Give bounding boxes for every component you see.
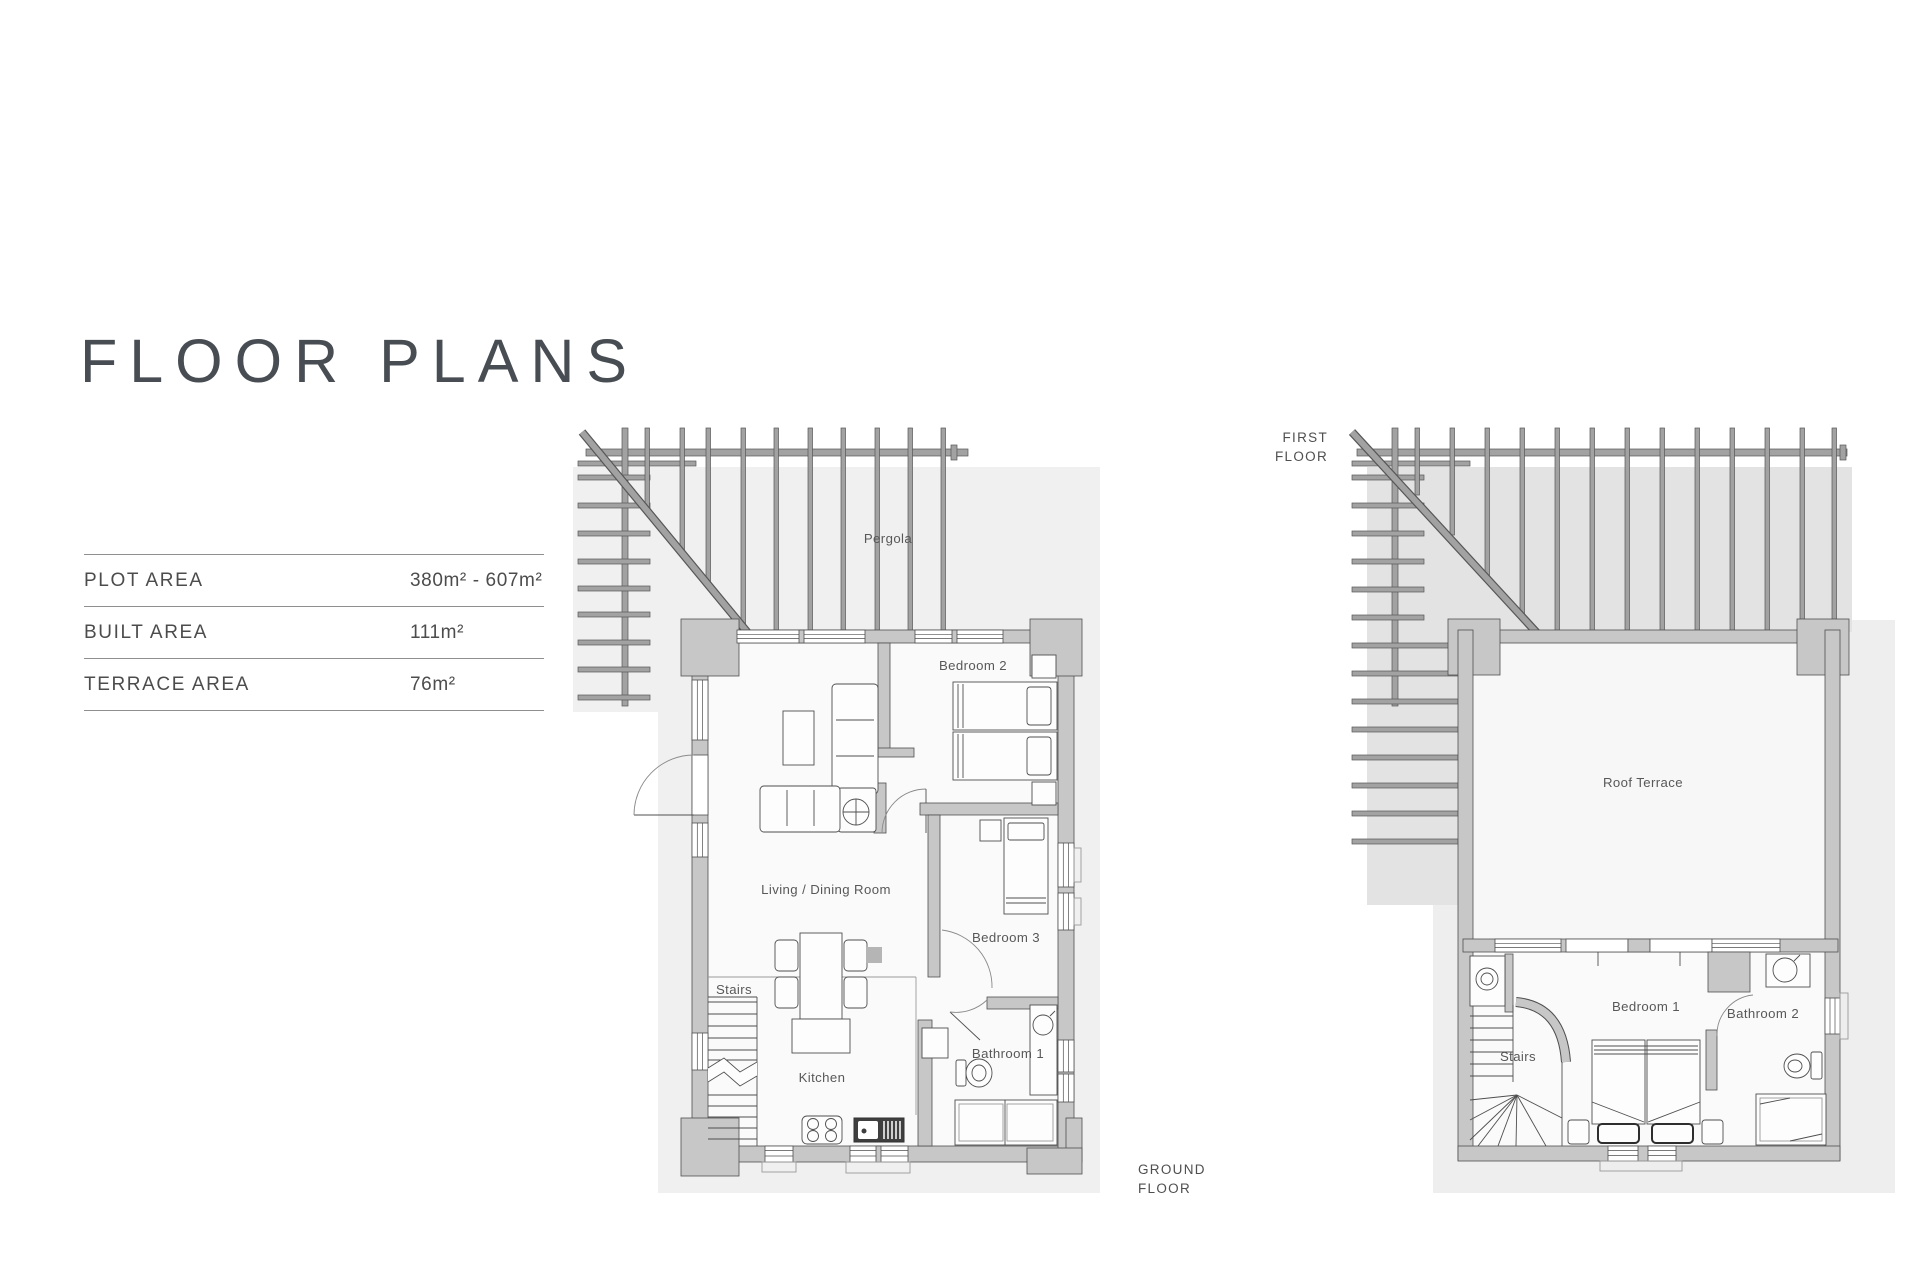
gf-sofa-small bbox=[760, 786, 840, 832]
ff-label-bedroom1: Bedroom 1 bbox=[1612, 999, 1680, 1014]
ff-terrace-floor bbox=[1471, 640, 1827, 942]
gf-label-stairs: Stairs bbox=[716, 982, 752, 997]
gf-toilet-tank bbox=[956, 1060, 966, 1086]
ff-basin bbox=[1773, 958, 1797, 982]
first-floor-caption-line2: FLOOR bbox=[1240, 447, 1328, 466]
ff-label-bathroom2: Bathroom 2 bbox=[1727, 1006, 1799, 1021]
terrace-area-label: TERRACE AREA bbox=[84, 674, 410, 696]
gf-basin bbox=[1033, 1015, 1053, 1035]
gf-coffee-table bbox=[783, 711, 814, 765]
gf-column bbox=[866, 947, 882, 963]
ground-floor-caption-line2: FLOOR bbox=[1138, 1179, 1206, 1198]
ff-shower bbox=[1756, 1094, 1826, 1145]
plot-area-label: PLOT AREA bbox=[84, 570, 410, 592]
first-floor-caption: FIRST FLOOR bbox=[1240, 428, 1328, 466]
page-title: FLOOR PLANS bbox=[80, 326, 639, 396]
gf-bathtub bbox=[955, 1100, 1057, 1145]
terrace-area-value: 76m² bbox=[410, 674, 456, 696]
ff-label-stairs: Stairs bbox=[1500, 1049, 1536, 1064]
built-area-value: 111m² bbox=[410, 622, 464, 644]
gf-label-living: Living / Dining Room bbox=[761, 882, 891, 897]
gf-hob bbox=[802, 1116, 842, 1144]
gf-label-bedroom3: Bedroom 3 bbox=[972, 930, 1040, 945]
gf-label-bathroom1: Bathroom 1 bbox=[972, 1046, 1044, 1061]
ff-bed-mattress-1 bbox=[1592, 1040, 1645, 1124]
ff-bed-mattress-2 bbox=[1647, 1040, 1700, 1124]
gf-label-kitchen: Kitchen bbox=[799, 1070, 846, 1085]
ground-floor-caption: GROUND FLOOR bbox=[1138, 1160, 1206, 1198]
gf-label-pergola: Pergola bbox=[864, 531, 913, 546]
first-floor-plan: Roof Terrace Bedroom 1 Bathroom 2 Stairs bbox=[1240, 410, 1900, 1210]
ff-label-roof-terrace: Roof Terrace bbox=[1603, 775, 1683, 790]
first-floor-caption-line1: FIRST bbox=[1240, 428, 1328, 447]
gf-label-bedroom2: Bedroom 2 bbox=[939, 658, 1007, 673]
ground-floor-caption-line1: GROUND bbox=[1138, 1160, 1206, 1179]
gf-sofa-large bbox=[832, 684, 878, 794]
gf-sideboard bbox=[792, 1019, 850, 1053]
gf-dining-table bbox=[800, 933, 842, 1019]
built-area-label: BUILT AREA bbox=[84, 622, 410, 644]
ground-floor-plan: Pergola Bedroom 2 Living / Dining Room B… bbox=[470, 410, 1130, 1210]
